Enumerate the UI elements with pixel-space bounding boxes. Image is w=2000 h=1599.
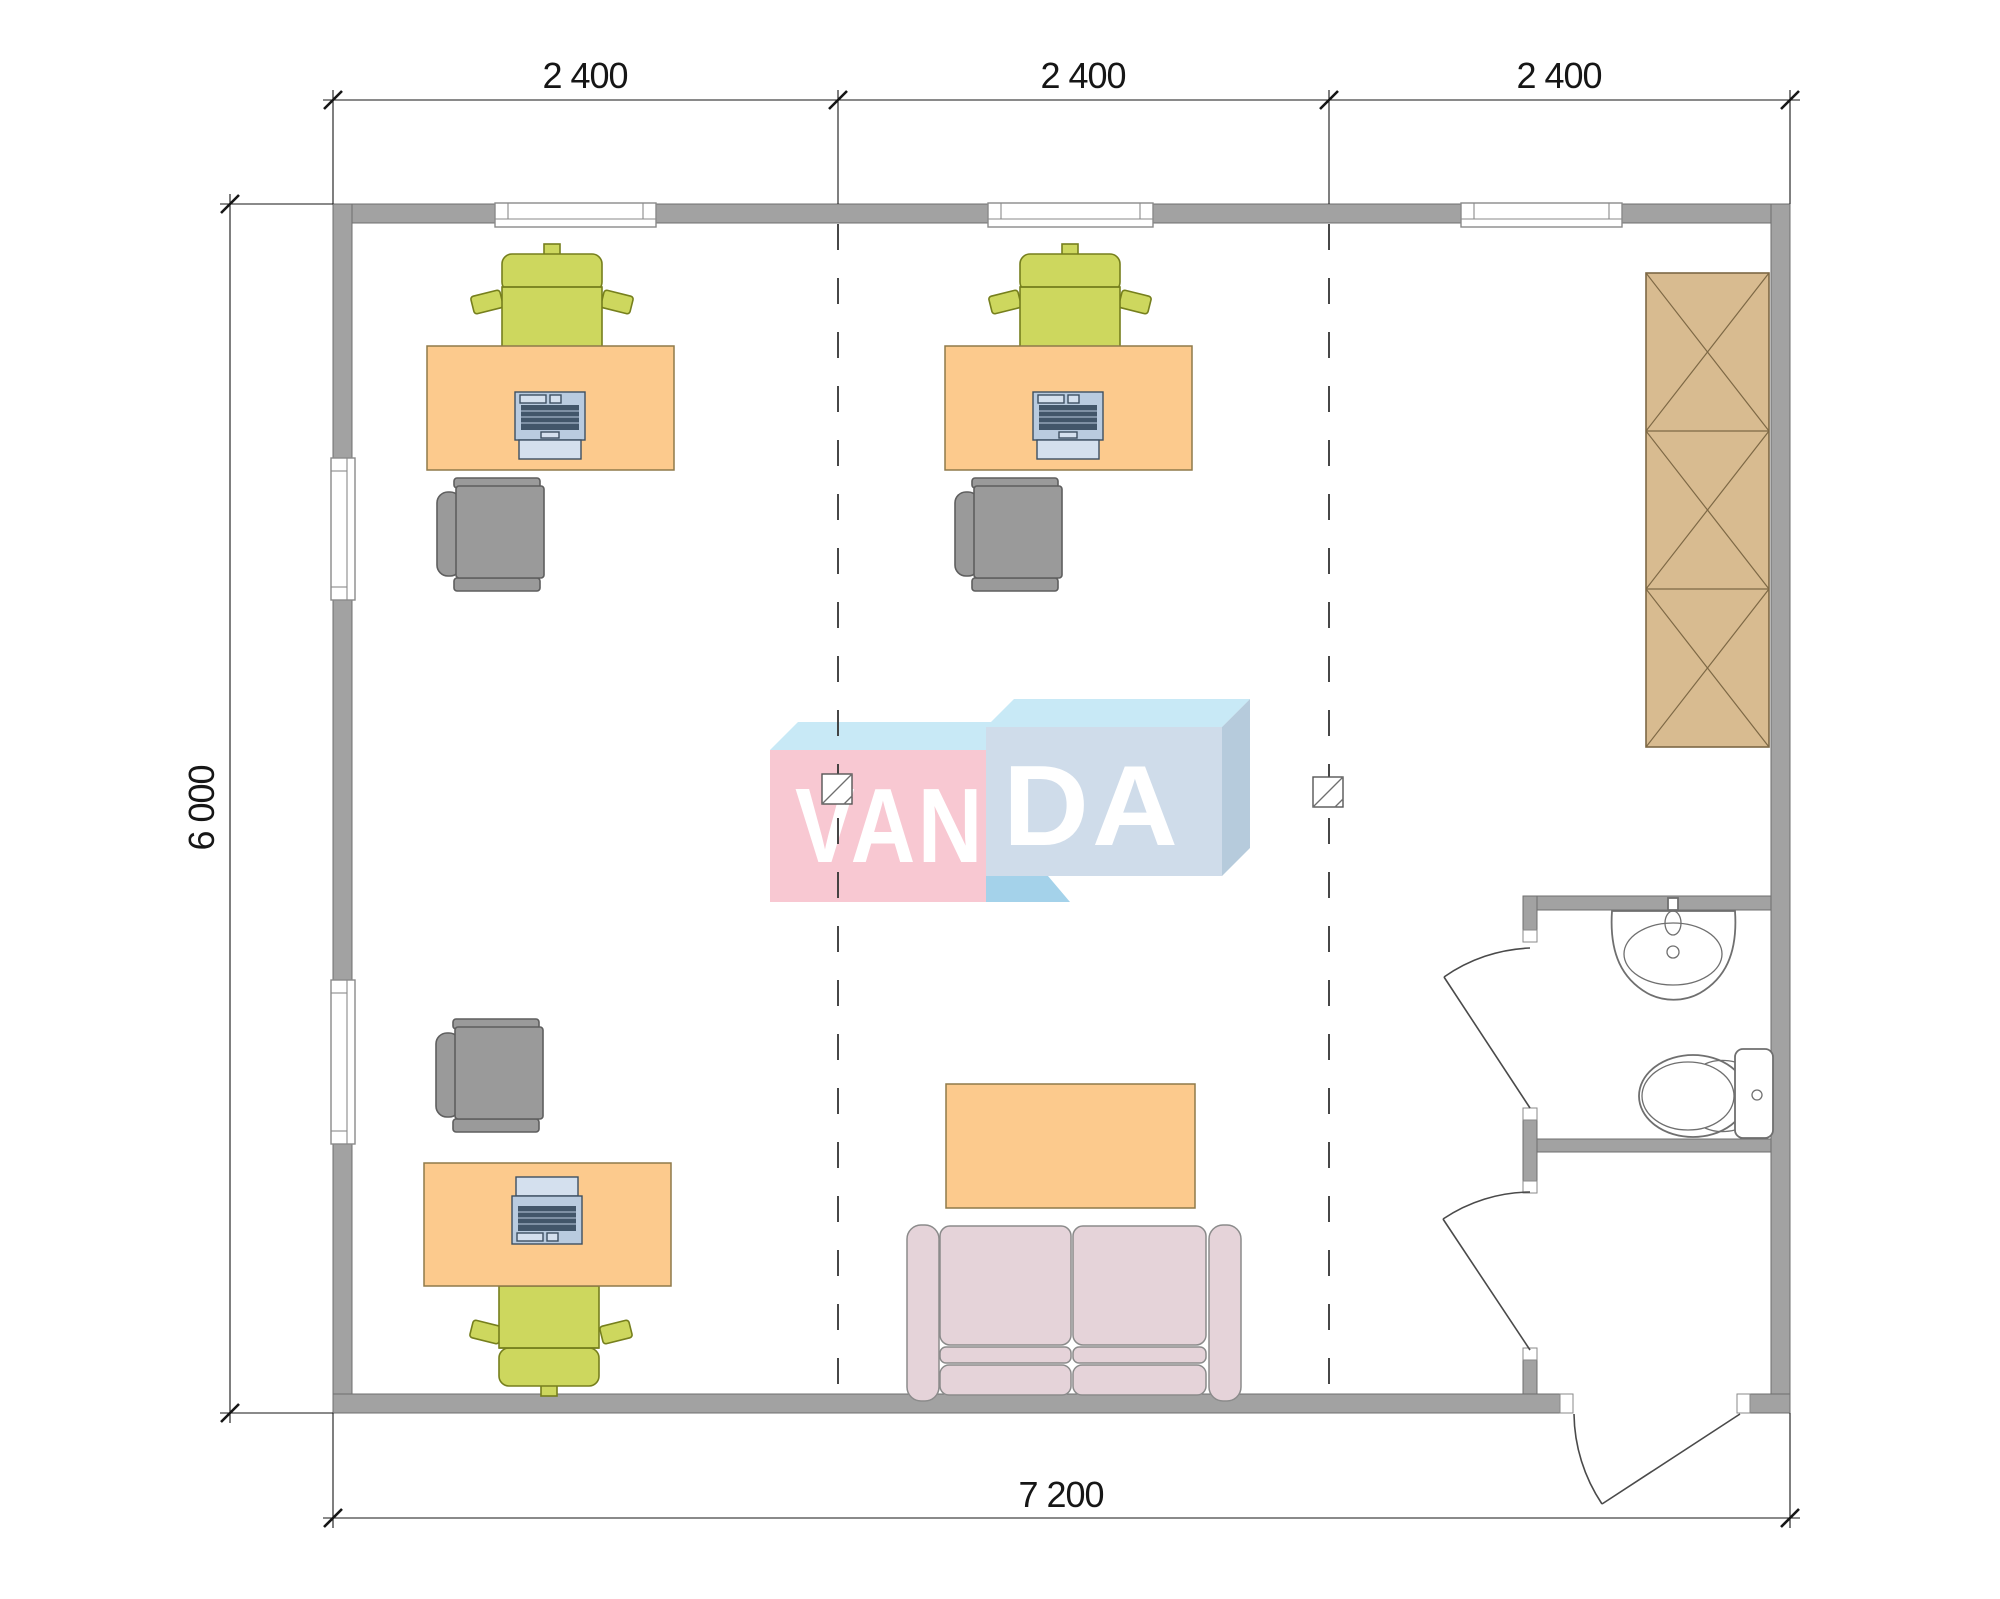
dim-label-top-1: 2 400: [542, 55, 627, 96]
sofa: [907, 1225, 1241, 1401]
dimension-bottom: 7 200: [323, 1413, 1800, 1528]
sofa-armrest: [1209, 1225, 1241, 1401]
office-chair-green: [469, 1286, 632, 1396]
office-chair-green: [470, 244, 633, 347]
office-chair-gray: [436, 1019, 543, 1132]
door-jamb-cap: [1523, 930, 1537, 942]
laptop-screen: [519, 440, 581, 459]
door-leaf: [1443, 1219, 1530, 1350]
doors: [1443, 930, 1750, 1504]
door-leaf: [1602, 1414, 1740, 1504]
logo-top-face-right: [986, 699, 1250, 727]
toilet: [1639, 1049, 1773, 1138]
floor-plan-canvas: VAN DA: [0, 0, 2000, 1599]
wall-left-3: [333, 1144, 352, 1413]
bathroom-wall-top: [1523, 896, 1771, 910]
chair-armrest: [470, 290, 503, 315]
chair-armrest: [453, 1119, 539, 1132]
door-jamb-cap: [1523, 1181, 1537, 1193]
wall-top-4: [1622, 204, 1790, 223]
wall-bottom-1: [333, 1394, 1560, 1413]
door-vestibule: [1443, 1192, 1530, 1350]
chair-seat: [456, 486, 544, 578]
sofa-back-cushion: [1073, 1365, 1206, 1395]
wall-left-2: [333, 600, 352, 980]
sofa-back-cushion: [940, 1365, 1071, 1395]
sink-basin-outline: [1612, 911, 1736, 1000]
wall-top-2: [656, 204, 988, 223]
sink: [1612, 898, 1736, 1000]
laptop-trackpad: [541, 432, 559, 438]
wall-top-1: [333, 204, 495, 223]
chair-armrest: [454, 578, 540, 591]
wall-right: [1771, 204, 1790, 1413]
coffee-table: [946, 1084, 1195, 1208]
office-chair-gray: [437, 478, 544, 591]
floor-plan-drawing: VAN DA: [0, 0, 2000, 1599]
dim-label-top-2: 2 400: [1040, 55, 1125, 96]
wall-bottom-2: [1748, 1394, 1790, 1413]
bathroom-wall-bottom: [1523, 1139, 1771, 1152]
laptop: [512, 1177, 582, 1244]
wall-left-1: [333, 204, 352, 458]
chair-seat: [499, 1286, 599, 1348]
toilet-tank: [1735, 1049, 1773, 1138]
faucet-icon: [1668, 898, 1678, 910]
sofa-seat-cushion: [940, 1226, 1071, 1345]
floor-drain-icon: [1313, 777, 1343, 807]
dimension-top: 2 400 2 400 2 400: [323, 55, 1800, 204]
bathroom-wall-stub-2: [1523, 1108, 1537, 1193]
door-bathroom: [1444, 948, 1530, 1108]
chair-armrest: [469, 1320, 502, 1345]
chair-armrest: [599, 1320, 632, 1345]
door-jamb-cap: [1737, 1394, 1750, 1413]
sofa-seat-cushion: [1073, 1226, 1206, 1345]
door-swing-arc: [1444, 948, 1530, 977]
window-left-1: [331, 458, 355, 600]
workstation-2: [945, 244, 1192, 591]
dim-label-bottom: 7 200: [1018, 1474, 1103, 1515]
door-jamb-cap: [1523, 1108, 1537, 1120]
door-swing-arc: [1443, 1192, 1530, 1219]
door-entrance: [1574, 1414, 1740, 1504]
laptop-screen: [516, 1177, 578, 1196]
window-left-2: [331, 980, 355, 1144]
logo-text-da: DA: [1003, 743, 1181, 870]
chair-seat: [455, 1027, 543, 1119]
sofa-back-cushion: [1073, 1347, 1206, 1363]
wardrobe-cabinet: [1646, 273, 1769, 747]
logo-top-face-left: [770, 722, 1014, 750]
wall-top-3: [1153, 204, 1461, 223]
dimension-left: 6 000: [181, 194, 333, 1423]
chair-seat: [502, 287, 602, 347]
logo-side-face: [1222, 699, 1250, 876]
dim-label-top-3: 2 400: [1516, 55, 1601, 96]
window-top-1: [495, 203, 656, 227]
workstation-3: [424, 1019, 671, 1396]
workstation-1: [427, 244, 674, 591]
chair-armrest: [600, 290, 633, 315]
chair-backrest: [499, 1348, 599, 1386]
sofa-armrest: [907, 1225, 939, 1401]
logo-accent-face: [986, 876, 1070, 902]
window-top-3: [1461, 203, 1622, 227]
toilet-bowl-outer: [1639, 1055, 1747, 1137]
door-swing-arc: [1574, 1414, 1602, 1504]
floor-drain-icon: [822, 774, 852, 804]
door-jamb-cap: [1560, 1394, 1573, 1413]
window-top-2: [988, 203, 1153, 227]
door-leaf: [1444, 977, 1530, 1108]
dim-label-left: 6 000: [181, 765, 222, 850]
sofa-back-cushion: [940, 1347, 1071, 1363]
laptop: [515, 392, 585, 459]
